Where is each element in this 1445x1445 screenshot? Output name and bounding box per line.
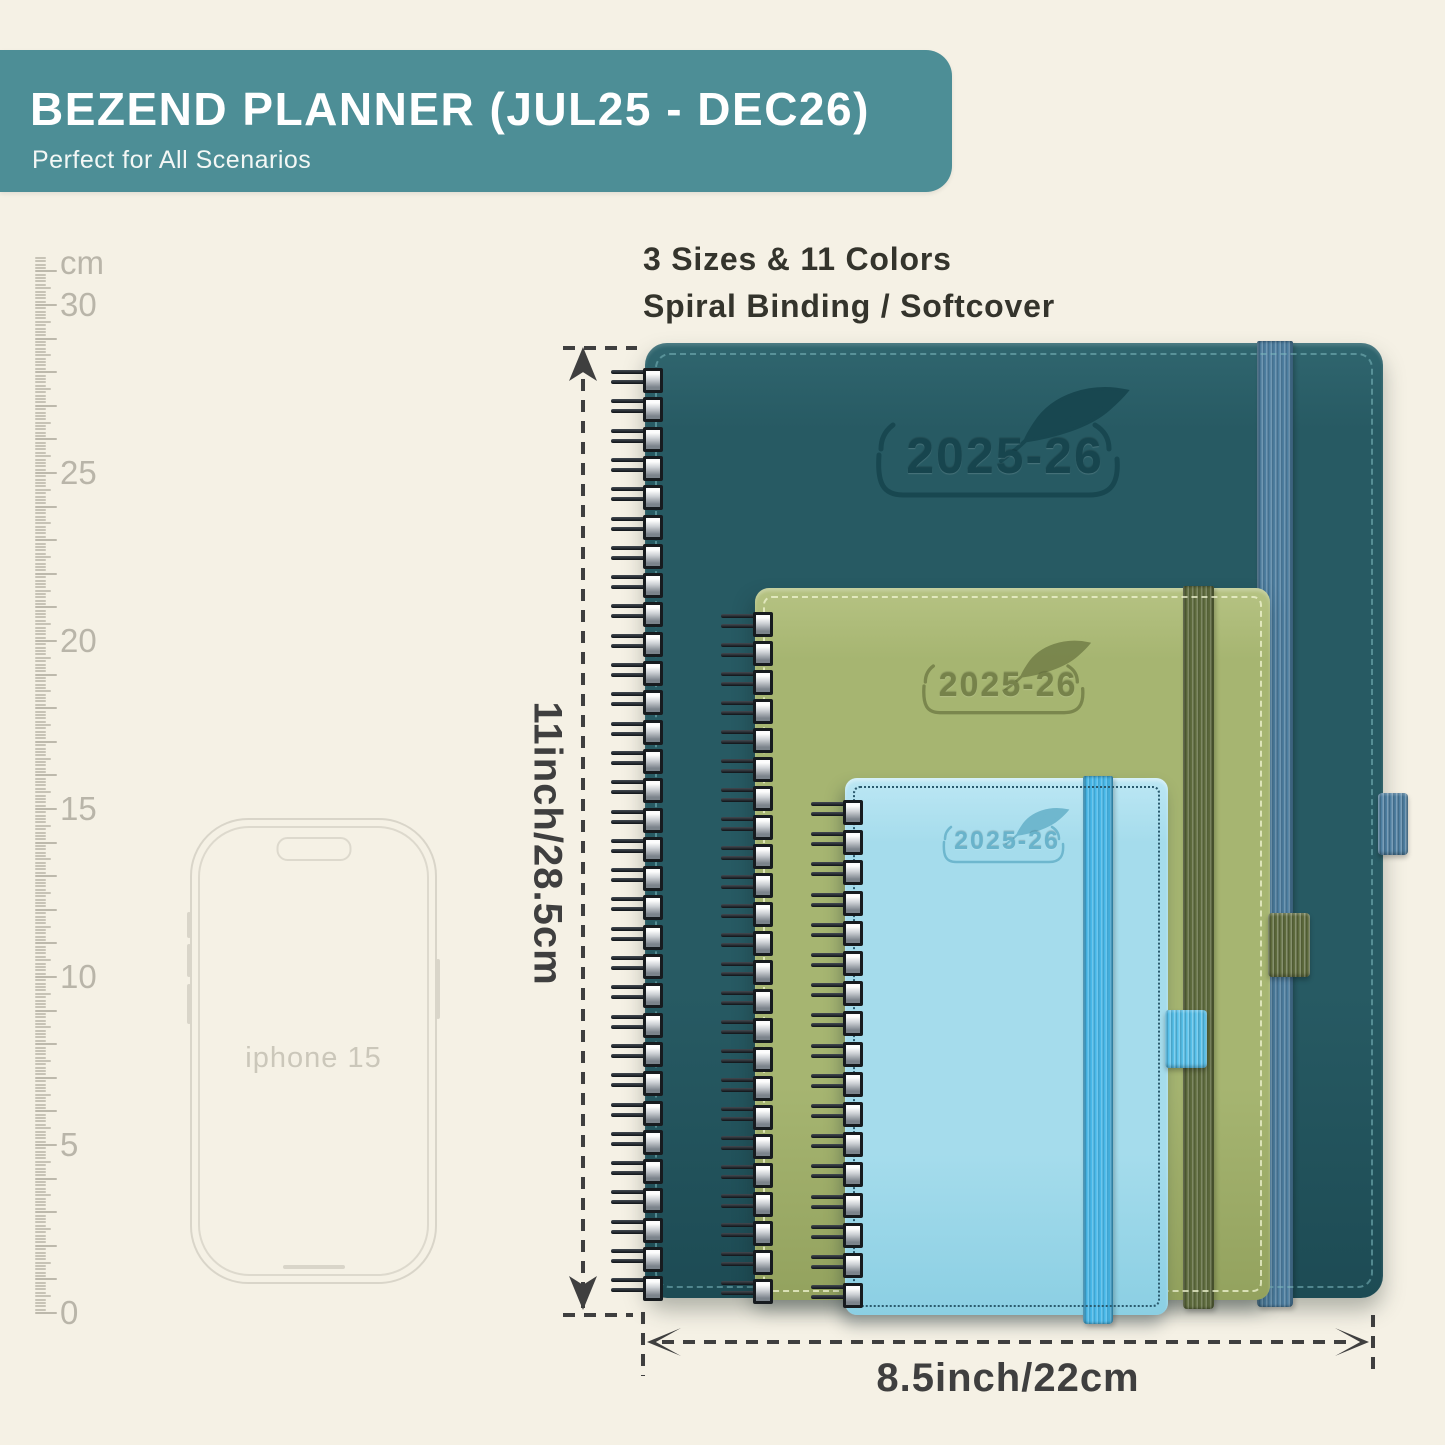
ruler-tick: [35, 1184, 46, 1186]
ruler-tick: [35, 1147, 46, 1149]
ruler-tick: [35, 566, 46, 568]
ruler-tick: [35, 469, 46, 471]
spiral-coil: [611, 1189, 663, 1207]
ruler-tick: [35, 798, 46, 800]
ruler-tick: [35, 889, 46, 891]
ruler-tick: [35, 445, 46, 447]
spiral-coil: [721, 1251, 773, 1269]
ruler-tick: [35, 348, 46, 350]
ruler-tick: [35, 529, 46, 531]
spiral-coil: [811, 1284, 863, 1302]
ruler-tick: [35, 435, 46, 437]
ruler-tick: [35, 1023, 46, 1025]
spiral-coil: [611, 1160, 663, 1178]
ruler-tick: [35, 983, 46, 985]
ruler-tick: [35, 905, 46, 907]
ruler-tick: [35, 1050, 46, 1052]
spiral-coil: [721, 1019, 773, 1037]
ruler-tick: [35, 1157, 46, 1159]
ruler-tick: [35, 637, 46, 639]
ruler-tick: [35, 448, 46, 450]
ruler-tick: [35, 670, 46, 672]
ruler-tick: [35, 973, 46, 975]
spiral-coil: [721, 700, 773, 718]
ruler-tick: [35, 1063, 46, 1065]
ruler-tick: [35, 324, 46, 326]
iphone-power-button: [436, 959, 440, 1019]
ruler-tick: [35, 912, 46, 914]
spiral-coil: [611, 516, 663, 534]
spiral-coil: [721, 1048, 773, 1066]
spiral-coil: [611, 545, 663, 563]
ruler-tick: [35, 1067, 46, 1069]
ruler-tick: [35, 368, 46, 370]
ruler-tick: [35, 573, 57, 575]
ruler-tick: [35, 731, 46, 733]
ruler-tick: [35, 1053, 46, 1055]
ruler-tick: [35, 633, 46, 635]
ruler-tick: [35, 428, 46, 430]
ruler-label: 25: [60, 454, 130, 492]
ruler-tick: [35, 307, 46, 309]
pen-loop-medium: [1268, 913, 1310, 977]
spiral-coil: [811, 1043, 863, 1061]
spiral-coil: [811, 801, 863, 819]
ruler-tick: [35, 270, 57, 272]
ruler-tick: [35, 989, 46, 991]
ruler-tick: [35, 479, 46, 481]
ruler-tick: [35, 899, 46, 901]
ruler-tick: [35, 583, 46, 585]
spiral-coil: [721, 816, 773, 834]
ruler-tick: [35, 1013, 46, 1015]
ruler-tick: [35, 1016, 46, 1018]
ruler-tick: [35, 660, 46, 662]
ruler-tick: [35, 875, 57, 877]
ruler-tick: [35, 828, 46, 830]
ruler-tick: [35, 885, 46, 887]
ruler-tick: [35, 395, 46, 397]
spiral-coil: [721, 990, 773, 1008]
ruler-tick: [35, 1040, 46, 1042]
ruler-tick: [35, 761, 46, 763]
ruler-tick: [35, 909, 57, 911]
ruler-tick: [35, 1026, 51, 1028]
ruler-tick: [35, 916, 46, 918]
ruler-tick: [35, 1090, 46, 1092]
ruler-tick: [35, 684, 46, 686]
spiral-coil: [611, 1014, 663, 1032]
ruler-tick: [35, 737, 46, 739]
ruler-tick: [35, 556, 51, 558]
ruler-tick: [35, 872, 46, 874]
ruler-tick: [35, 620, 46, 622]
spiral-coil: [721, 1077, 773, 1095]
ruler-tick: [35, 996, 46, 998]
ruler-tick: [35, 596, 46, 598]
ruler-tick: [35, 475, 46, 477]
ruler-tick: [35, 405, 57, 407]
ruler-tick: [35, 674, 57, 676]
spiral-coil: [611, 486, 663, 504]
ruler-label: 10: [60, 958, 130, 996]
emboss-large: 2025-26: [855, 383, 1155, 513]
ruler-tick: [35, 412, 46, 414]
emboss-medium: 2025-26: [908, 638, 1108, 725]
ruler-tick: [35, 546, 46, 548]
ruler-tick: [35, 764, 46, 766]
ruler-tick: [35, 291, 46, 293]
ruler-tick: [35, 758, 51, 760]
iphone-volume-up-button: [187, 944, 191, 977]
ruler-tick: [35, 1265, 46, 1267]
ruler-tick: [35, 391, 46, 393]
ruler-tick: [35, 438, 57, 440]
elastic-band-medium: [1183, 586, 1214, 1309]
ruler-tick: [35, 408, 46, 410]
ruler-tick: [35, 677, 46, 679]
ruler-tick: [35, 536, 46, 538]
spiral-coil: [611, 926, 663, 944]
ruler-tick: [35, 741, 57, 743]
ruler-tick: [35, 442, 46, 444]
spiral-coil: [811, 1224, 863, 1242]
ruler-tick: [35, 516, 46, 518]
spiral-coil: [611, 662, 663, 680]
ruler-tick: [35, 415, 46, 417]
spiral-coil: [721, 961, 773, 979]
spiral-coil: [611, 1043, 663, 1061]
ruler-tick: [35, 1120, 46, 1122]
ruler-tick: [35, 852, 46, 854]
header-banner: BEZEND PLANNER (JUL25 - DEC26) Perfect f…: [0, 50, 952, 192]
spiral-coil: [721, 1135, 773, 1153]
spiral-coil: [611, 896, 663, 914]
ruler-tick: [35, 1181, 46, 1183]
spiral-coil: [721, 671, 773, 689]
spiral-coil: [811, 1103, 863, 1121]
ruler-tick: [35, 459, 46, 461]
spiral-coil: [811, 1254, 863, 1272]
ruler-tick: [35, 1141, 46, 1143]
ruler-label: 5: [60, 1126, 130, 1164]
ruler-tick: [35, 472, 57, 474]
ruler-tick: [35, 590, 51, 592]
spiral-coil: [611, 750, 663, 768]
ruler-tick: [35, 862, 46, 864]
product-info: 3 Sizes & 11 Colors Spiral Binding / Sof…: [643, 236, 1055, 330]
iphone-volume-down-button: [187, 984, 191, 1024]
ruler-tick: [35, 341, 46, 343]
ruler-tick: [35, 543, 46, 545]
ruler-tick: [35, 680, 46, 682]
ruler-tick: [35, 328, 46, 330]
ruler-tick: [35, 1100, 46, 1102]
ruler-tick: [35, 1272, 46, 1274]
ruler-tick: [35, 331, 46, 333]
ruler-tick: [35, 1003, 46, 1005]
spiral-coil: [721, 642, 773, 660]
ruler-tick: [35, 845, 46, 847]
ruler-tick: [35, 1104, 46, 1106]
ruler-tick: [35, 1131, 46, 1133]
ruler-tick: [35, 1030, 46, 1032]
spiral-binding-medium: [721, 588, 775, 1300]
spiral-coil: [611, 1219, 663, 1237]
ruler-tick: [35, 576, 46, 578]
ruler-tick: [35, 942, 57, 944]
ruler-tick: [35, 902, 46, 904]
ruler-tick: [35, 1201, 46, 1203]
ruler-tick: [35, 361, 46, 363]
ruler-tick: [35, 690, 51, 692]
ruler-tick: [35, 778, 46, 780]
ruler-label: 20: [60, 622, 130, 660]
ruler-tick: [35, 1144, 57, 1146]
spiral-coil: [721, 932, 773, 950]
ruler-tick: [35, 1033, 46, 1035]
ruler-tick: [35, 539, 57, 541]
ruler-tick: [35, 1047, 46, 1049]
ruler-tick: [35, 425, 46, 427]
ruler-label: 15: [60, 790, 130, 828]
ruler-tick: [35, 260, 46, 262]
iphone-outline: iphone 15: [190, 818, 437, 1284]
ruler-tick: [35, 398, 46, 400]
ruler-tick: [35, 280, 46, 282]
ruler-tick: [35, 496, 46, 498]
ruler-tick: [35, 808, 57, 810]
ruler-tick: [35, 294, 46, 296]
ruler-tick: [35, 1228, 51, 1230]
ruler-tick: [35, 1127, 51, 1129]
product-infographic: BEZEND PLANNER (JUL25 - DEC26) Perfect f…: [0, 0, 1445, 1445]
dimension-tick: [563, 1313, 633, 1317]
ruler-tick: [35, 1258, 46, 1260]
ruler-tick: [35, 287, 51, 289]
ruler-tick: [35, 499, 46, 501]
info-line-sizes: 3 Sizes & 11 Colors: [643, 236, 1055, 283]
ruler-tick: [35, 832, 46, 834]
ruler-tick: [35, 506, 57, 508]
ruler-tick: [35, 936, 46, 938]
ruler-tick: [35, 1218, 46, 1220]
spiral-coil: [611, 867, 663, 885]
ruler-tick: [35, 1077, 57, 1079]
ruler-tick: [35, 1124, 46, 1126]
ruler-tick: [35, 667, 46, 669]
spiral-coil: [721, 1193, 773, 1211]
ruler-tick: [35, 647, 46, 649]
ruler-tick: [35, 627, 46, 629]
ruler-tick: [35, 781, 46, 783]
ruler-tick: [35, 1302, 46, 1304]
height-dimension-label: 11inch/28.5cm: [525, 664, 570, 1024]
ruler-tick: [35, 610, 46, 612]
ruler-tick: [35, 640, 57, 642]
ruler-tick: [35, 623, 51, 625]
ruler-tick: [35, 795, 46, 797]
ruler-tick: [35, 1282, 46, 1284]
ruler-tick: [35, 734, 46, 736]
spiral-coil: [611, 1131, 663, 1149]
ruler-tick: [35, 1255, 46, 1257]
ruler-tick: [35, 1134, 46, 1136]
ruler-tick: [35, 593, 46, 595]
ruler-tick: [35, 519, 46, 521]
ruler-tick: [35, 711, 46, 713]
ruler-tick: [35, 946, 46, 948]
ruler-tick: [35, 657, 51, 659]
year-label-large: 2025-26: [855, 427, 1155, 485]
ruler-tick: [35, 482, 46, 484]
ruler-tick: [35, 895, 46, 897]
iphone-action-button: [187, 912, 191, 938]
ruler-tick: [35, 317, 46, 319]
ruler-tick: [35, 344, 46, 346]
ruler-tick: [35, 1168, 46, 1170]
dynamic-island: [276, 837, 351, 861]
width-dimension-label: 8.5inch/22cm: [808, 1356, 1208, 1401]
ruler-tick: [35, 1164, 46, 1166]
ruler-tick: [35, 805, 46, 807]
ruler-tick: [35, 549, 46, 551]
spiral-coil: [721, 613, 773, 631]
planner-small: 2025-26: [845, 778, 1168, 1315]
ruler-tick: [35, 606, 57, 608]
ruler-tick: [35, 502, 46, 504]
ruler-tick: [35, 865, 46, 867]
ruler-tick: [35, 422, 51, 424]
ruler-tick: [35, 1198, 46, 1200]
ruler-tick: [35, 522, 51, 524]
ruler-tick: [35, 385, 46, 387]
spiral-coil: [611, 457, 663, 475]
ruler-tick: [35, 1087, 46, 1089]
ruler-tick: [35, 821, 46, 823]
ruler-tick: [35, 381, 46, 383]
ruler-tick: [35, 526, 46, 528]
spiral-coil: [811, 1194, 863, 1212]
info-line-binding: Spiral Binding / Softcover: [643, 283, 1055, 330]
spiral-coil: [721, 903, 773, 921]
spiral-coil: [611, 721, 663, 739]
spiral-coil: [611, 984, 663, 1002]
ruler-tick: [35, 919, 46, 921]
ruler-tick: [35, 1231, 46, 1233]
ruler-tick: [35, 321, 51, 323]
ruler-tick: [35, 351, 46, 353]
ruler-tick: [35, 452, 46, 454]
ruler-tick: [35, 1000, 46, 1002]
ruler-tick: [35, 465, 46, 467]
ruler-tick: [35, 650, 46, 652]
ruler-tick: [35, 838, 46, 840]
ruler-tick: [35, 791, 51, 793]
ruler-tick: [35, 569, 46, 571]
spiral-coil: [611, 1248, 663, 1266]
ruler-tick: [35, 744, 46, 746]
ruler-tick: [35, 858, 51, 860]
ruler-tick: [35, 774, 57, 776]
dimension-line-vertical: [581, 358, 585, 1308]
ruler-tick: [35, 432, 46, 434]
ruler-tick: [35, 1204, 46, 1206]
ruler-tick: [35, 1070, 46, 1072]
spiral-coil: [611, 955, 663, 973]
spiral-coil: [811, 892, 863, 910]
ruler-tick: [35, 277, 46, 279]
ruler-tick: [35, 892, 51, 894]
ruler-tick: [35, 993, 51, 995]
ruler-tick: [35, 704, 46, 706]
ruler-tick: [35, 1208, 46, 1210]
ruler-tick: [35, 1114, 46, 1116]
ruler-tick: [35, 1194, 51, 1196]
iphone-home-bar: [283, 1265, 345, 1269]
ruler-tick: [35, 354, 51, 356]
ruler-tick: [35, 700, 46, 702]
ruler-tick: [35, 1080, 46, 1082]
elastic-band-small: [1083, 776, 1113, 1324]
ruler-tick: [35, 371, 57, 373]
ruler-tick: [35, 929, 46, 931]
ruler-tick: [35, 1057, 46, 1059]
pen-loop-large: [1378, 793, 1408, 855]
ruler-tick: [35, 976, 57, 978]
ruler-tick: [35, 314, 46, 316]
ruler-tick: [35, 559, 46, 561]
ruler-tick: [35, 1010, 57, 1012]
ruler-tick: [35, 721, 46, 723]
spiral-coil: [611, 369, 663, 387]
ruler-tick: [35, 1245, 57, 1247]
spiral-coil: [611, 633, 663, 651]
ruler-tick: [35, 401, 46, 403]
ruler-tick: [35, 835, 46, 837]
ruler-tick: [35, 563, 46, 565]
ruler-tick: [35, 1161, 51, 1163]
ruler-tick: [35, 801, 46, 803]
ruler-tick: [35, 949, 46, 951]
emboss-small: 2025-26: [932, 806, 1082, 871]
ruler: cm 302520151050: [0, 0, 130, 1445]
ruler-tick: [35, 1305, 46, 1307]
ruler-tick: [35, 462, 46, 464]
ruler-tick: [35, 727, 46, 729]
ruler-tick: [35, 768, 46, 770]
ruler-tick: [35, 643, 46, 645]
ruler-tick: [35, 489, 51, 491]
spiral-coil: [611, 428, 663, 446]
ruler-tick: [35, 979, 46, 981]
ruler-tick: [35, 1309, 46, 1311]
ruler-tick: [35, 1215, 46, 1217]
ruler-tick: [35, 1117, 46, 1119]
ruler-tick: [35, 1292, 46, 1294]
ruler-tick: [35, 1191, 46, 1193]
ruler-tick: [35, 842, 57, 844]
spiral-coil: [721, 1164, 773, 1182]
spiral-coil: [721, 787, 773, 805]
spiral-coil: [721, 1222, 773, 1240]
ruler-tick: [35, 687, 46, 689]
spiral-coil: [811, 1163, 863, 1181]
ruler-tick: [35, 1154, 46, 1156]
ruler-tick: [35, 274, 46, 276]
ruler-tick: [35, 879, 46, 881]
ruler-tick: [35, 613, 46, 615]
